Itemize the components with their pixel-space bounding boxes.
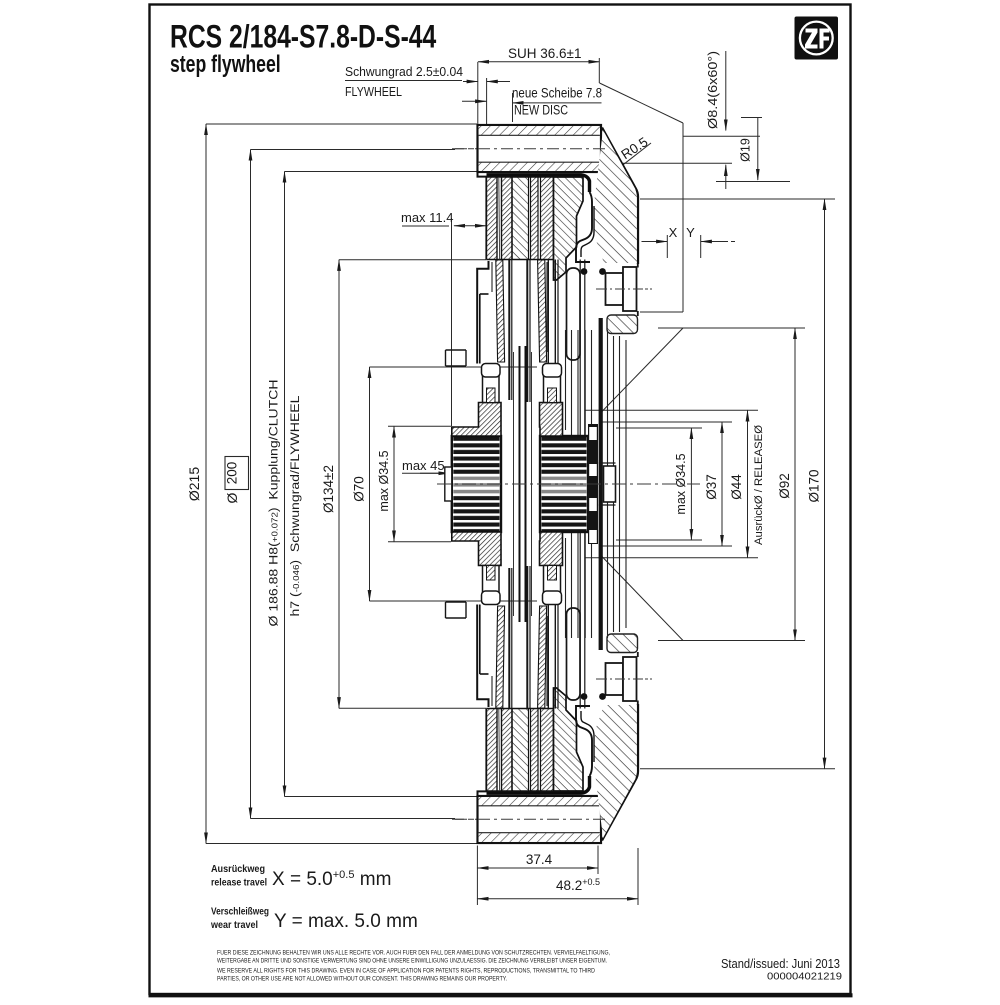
svg-text:Verschleißweg: Verschleißweg [211,906,269,918]
svg-text:Ø170: Ø170 [807,469,822,502]
svg-text:Ø 186.88 H8(+0.072) Kupplung/: Ø 186.88 H8(+0.072) Kupplung/CLUTCH [269,380,281,627]
svg-text:Schwungrad 2.5±0.04: Schwungrad 2.5±0.04 [345,64,463,79]
svg-text:PARTIES, OR OTHER USE ARE NOT: PARTIES, OR OTHER USE ARE NOT ALLOWED WI… [217,977,507,983]
svg-text:SUH 36.6±1: SUH 36.6±1 [508,46,581,61]
svg-text:WEITERGABE AN DRITTE UND SONST: WEITERGABE AN DRITTE UND SONSTIGE VERWER… [217,959,607,965]
svg-text:200: 200 [225,462,240,485]
svg-text:step flywheel: step flywheel [170,50,281,78]
svg-text:neue Scheibe 7.8: neue Scheibe 7.8 [512,86,602,101]
svg-text:wear travel: wear travel [210,919,258,931]
svg-text:X = 5.0+0.5 mm: X = 5.0+0.5 mm [272,869,391,890]
svg-text:Ø215: Ø215 [186,467,202,501]
svg-text:AusrückØ / RELEASEØ: AusrückØ / RELEASEØ [753,425,765,545]
svg-text:WE RESERVE ALL RIGHTS FOR THIS: WE RESERVE ALL RIGHTS FOR THIS DRAWING. … [217,969,596,975]
svg-text:max Ø34.5: max Ø34.5 [377,450,391,511]
svg-text:NEW DISC: NEW DISC [514,103,568,118]
svg-text:Ø92: Ø92 [777,473,792,499]
svg-text:Ø70: Ø70 [352,476,367,502]
svg-text:37.4: 37.4 [526,852,553,867]
svg-text:Ø134±2: Ø134±2 [321,465,336,513]
svg-text:release travel: release travel [211,877,267,889]
svg-text:Ø37: Ø37 [704,474,719,500]
svg-text:Stand/issued: Juni 2013: Stand/issued: Juni 2013 [721,956,840,971]
svg-text:Ø19: Ø19 [739,138,753,162]
svg-text:Ø: Ø [224,492,240,503]
svg-text:max 45: max 45 [402,458,445,473]
svg-text:000004021219: 000004021219 [767,972,842,983]
svg-text:h7 (-0.046) Schwungrad/FLYWHE: h7 (-0.046) Schwungrad/FLYWHEEL [290,395,302,617]
svg-text:Ausrückweg: Ausrückweg [211,863,265,875]
svg-text:max 11.4: max 11.4 [401,210,454,225]
svg-text:Y: Y [686,225,695,240]
svg-text:Ø8.4(6x60°): Ø8.4(6x60°) [706,51,720,129]
svg-text:Y = max. 5.0 mm: Y = max. 5.0 mm [274,911,418,932]
svg-text:FLYWHEEL: FLYWHEEL [345,84,402,99]
svg-text:Ø44: Ø44 [729,474,744,500]
svg-text:FUER DIESE ZEICHNUNG BEHALTEN: FUER DIESE ZEICHNUNG BEHALTEN WIR UNS AL… [217,951,610,957]
svg-text:X: X [669,225,678,240]
